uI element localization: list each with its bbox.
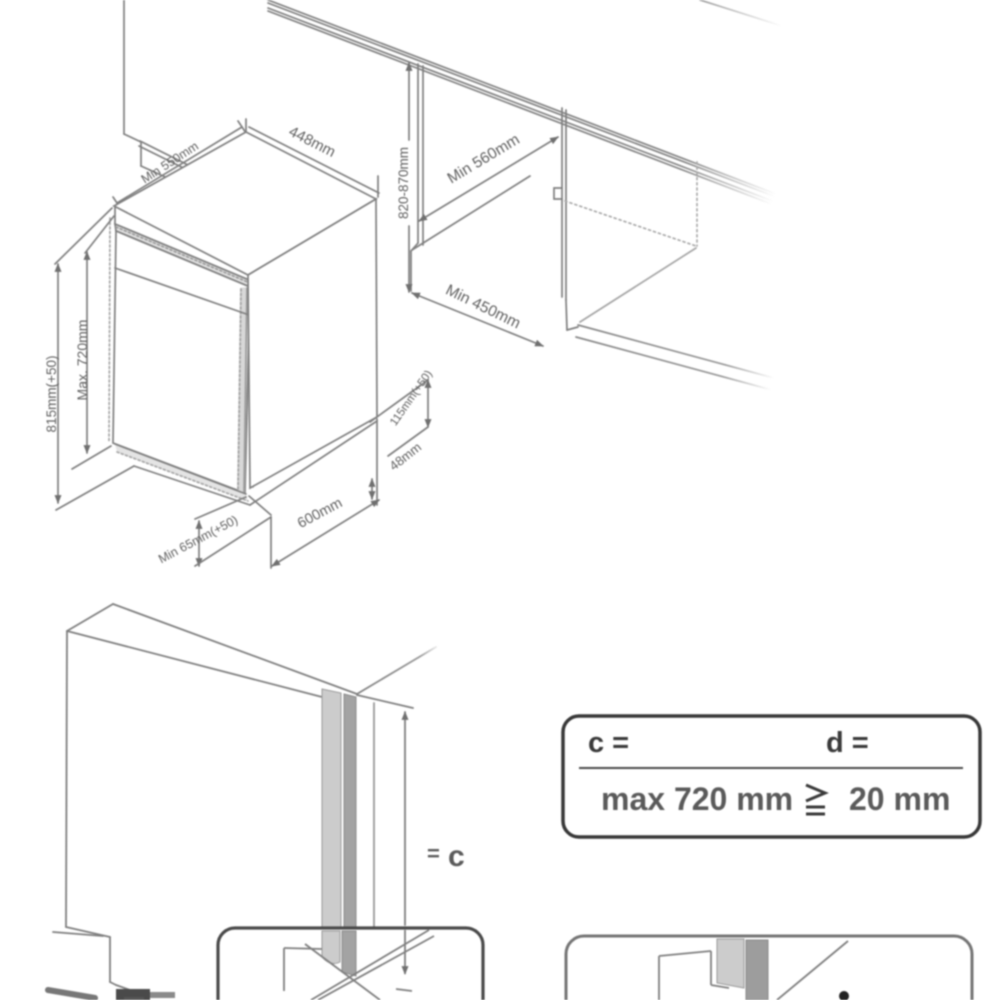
svg-text:Min 65mm(+50): Min 65mm(+50) (156, 513, 240, 567)
svg-text:max 720 mm: max 720 mm (601, 781, 793, 817)
svg-text:c =: c = (588, 727, 629, 759)
svg-text:=: = (427, 841, 440, 866)
svg-text:448mm: 448mm (286, 123, 338, 161)
svg-text:815mm(+50): 815mm(+50) (44, 356, 59, 433)
svg-text:20 mm: 20 mm (849, 781, 950, 817)
svg-text:d =: d = (826, 727, 869, 759)
svg-text:Min 560mm: Min 560mm (445, 131, 523, 187)
svg-text:Min 450mm: Min 450mm (443, 282, 523, 333)
svg-text:c: c (448, 840, 465, 873)
svg-text:Max. 720mm: Max. 720mm (74, 320, 90, 401)
svg-text:820-870mm: 820-870mm (396, 147, 411, 219)
